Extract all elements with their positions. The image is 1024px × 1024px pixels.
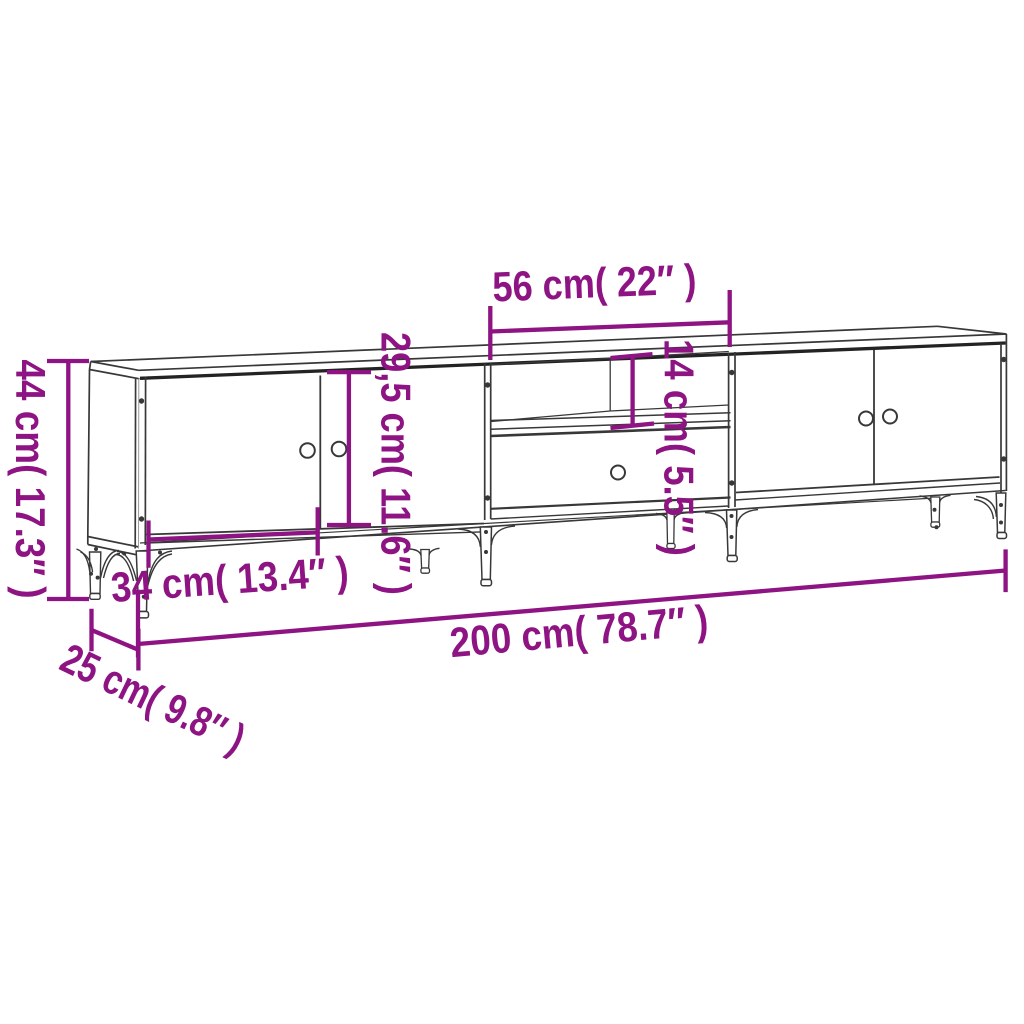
- svg-text:14 cm( 5.5″ ): 14 cm( 5.5″ ): [656, 339, 703, 556]
- svg-text:44 cm( 17.3″ ): 44 cm( 17.3″ ): [7, 360, 54, 599]
- svg-text:56 cm( 22″ ): 56 cm( 22″ ): [491, 255, 697, 310]
- svg-text:29,5 cm( 11.6″ ): 29,5 cm( 11.6″ ): [373, 332, 420, 595]
